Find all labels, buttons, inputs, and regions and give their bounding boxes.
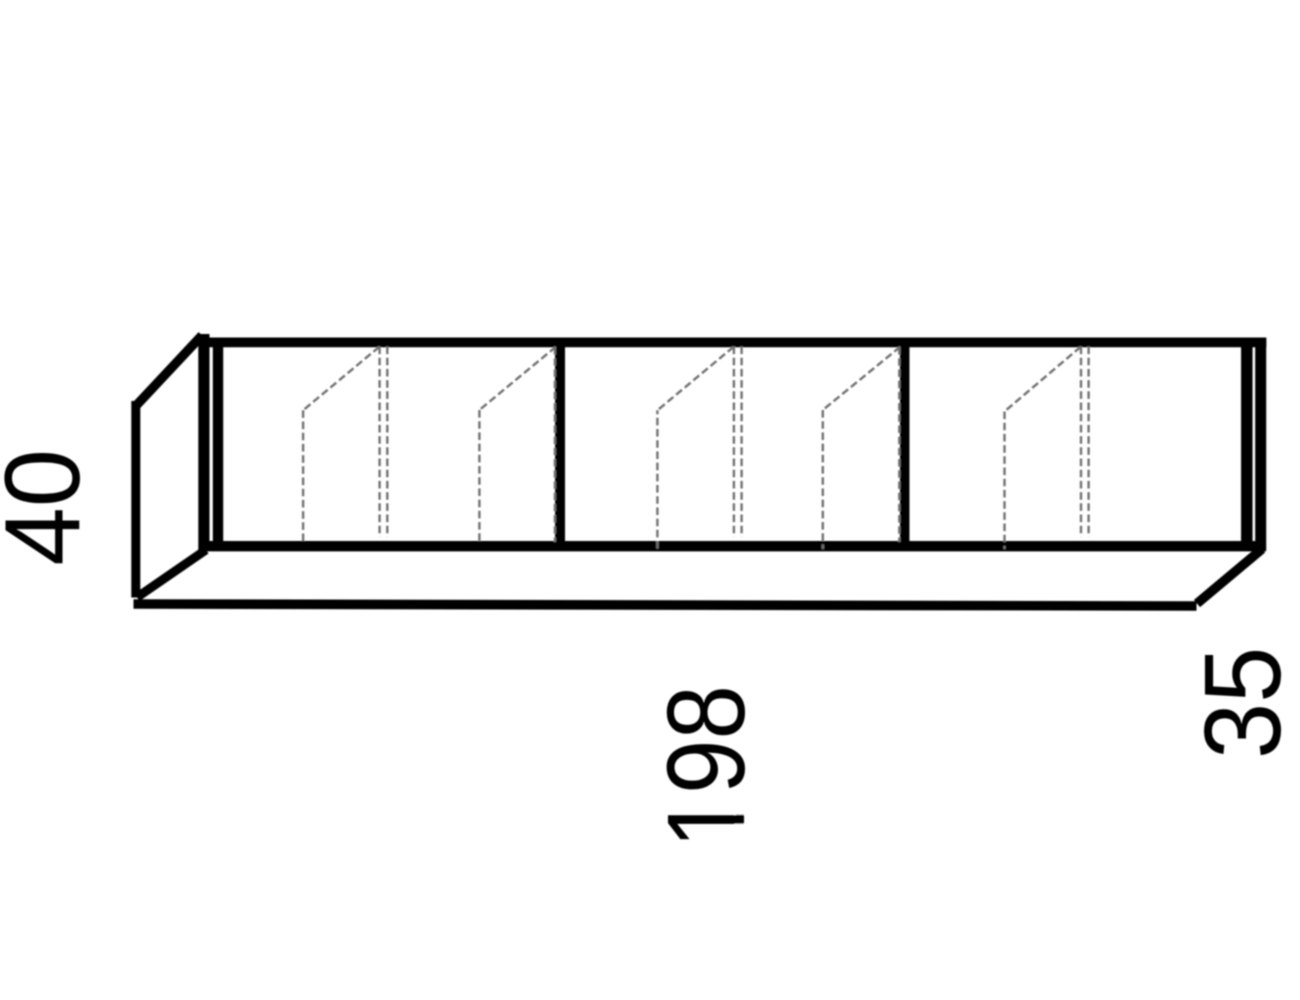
svg-text:40: 40 xyxy=(0,449,102,566)
svg-text:35: 35 xyxy=(1182,647,1300,759)
svg-text:198: 198 xyxy=(645,685,769,849)
